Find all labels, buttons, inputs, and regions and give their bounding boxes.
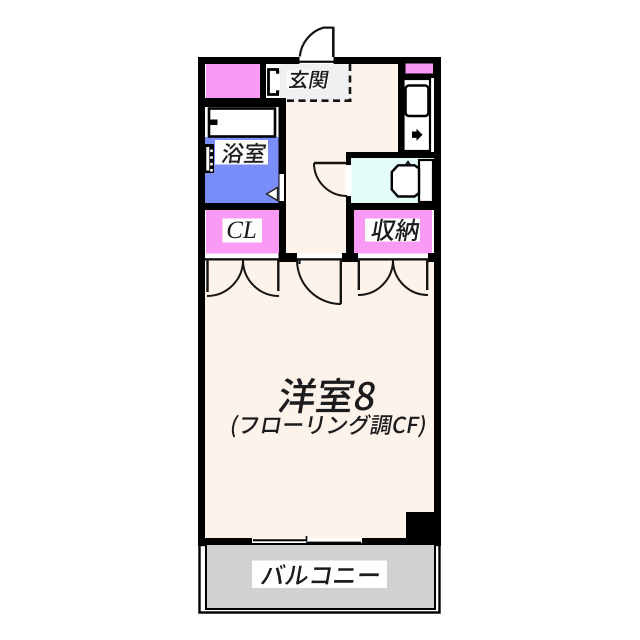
svg-text:CL: CL [226, 217, 257, 244]
